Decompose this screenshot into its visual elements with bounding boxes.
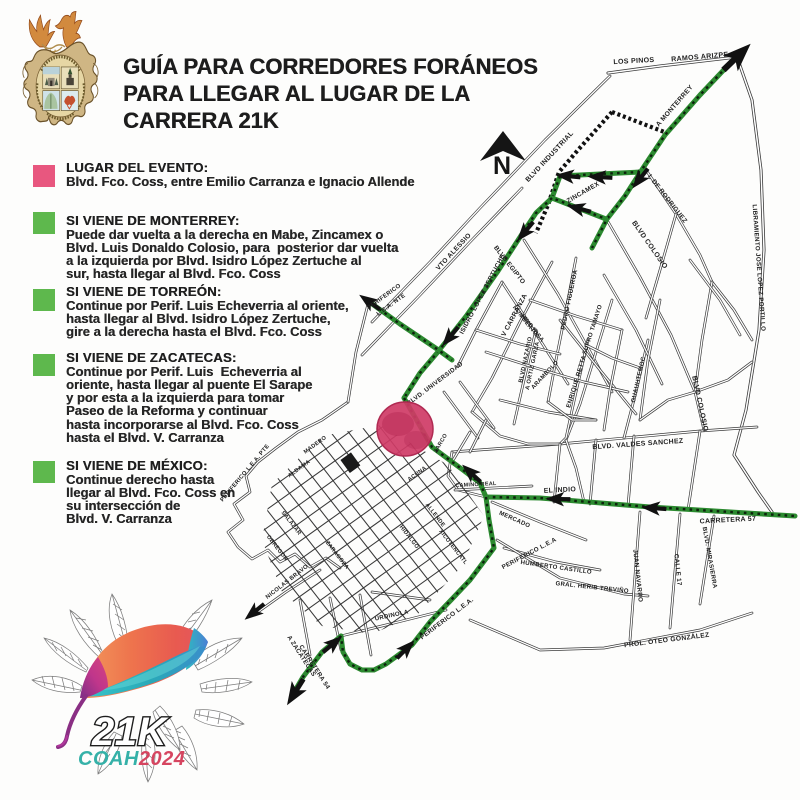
svg-text:ALDAMA: ALDAMA: [287, 459, 312, 479]
svg-text:PEDRO FIGUEROA: PEDRO FIGUEROA: [560, 269, 580, 331]
svg-text:HIDALGO: HIDALGO: [398, 525, 420, 551]
svg-text:ZINCAMEX: ZINCAMEX: [566, 180, 601, 204]
svg-text:CARRETERA 57: CARRETERA 57: [700, 516, 757, 526]
svg-text:MERCADO: MERCADO: [498, 511, 531, 530]
svg-text:ISIDRO LOPEZ ZERTUCHE: ISIDRO LOPEZ ZERTUCHE: [459, 253, 507, 336]
svg-text:ACUNA: ACUNA: [407, 465, 428, 483]
svg-text:PROL. OTEO GONZÁLEZ: PROL. OTEO GONZÁLEZ: [623, 630, 709, 649]
svg-text:LOS PINOS: LOS PINOS: [613, 57, 654, 66]
svg-text:I. DE RODRIGUEZ: I. DE RODRIGUEZ: [646, 173, 688, 224]
svg-text:EL INDIO: EL INDIO: [544, 486, 577, 495]
svg-text:COAH2024: COAH2024: [78, 748, 185, 770]
svg-text:BLVD COLOSIO: BLVD COLOSIO: [630, 220, 668, 271]
svg-text:MADERO: MADERO: [303, 435, 328, 456]
svg-text:BLVD COLOSIO: BLVD COLOSIO: [690, 375, 709, 432]
svg-text:N: N: [493, 152, 511, 180]
svg-text:GRAL. HERIB TREVIÑO: GRAL. HERIB TREVIÑO: [555, 580, 629, 595]
